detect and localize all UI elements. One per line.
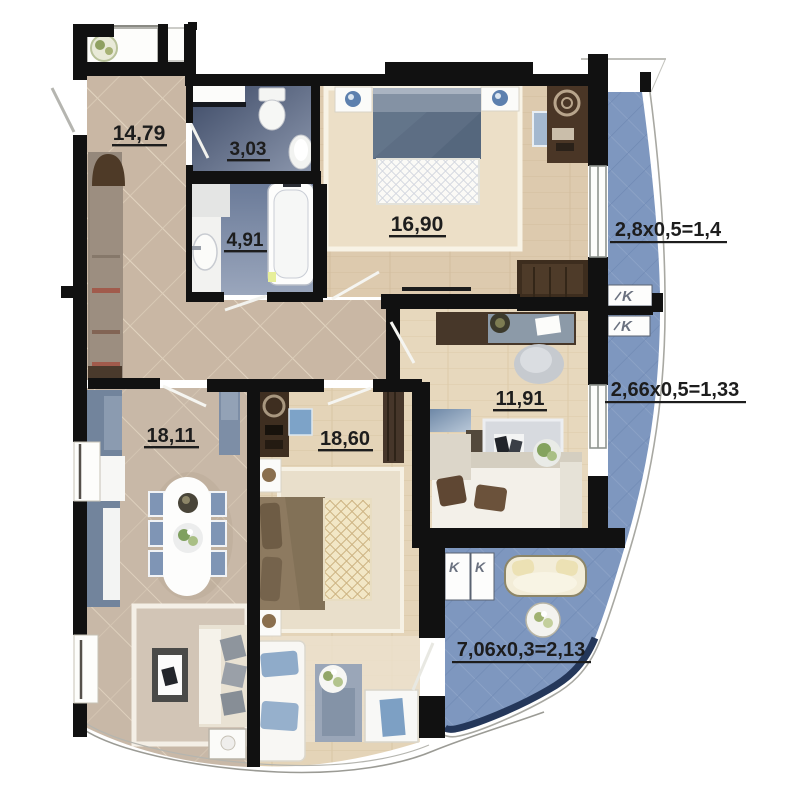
svg-text:14,79: 14,79 bbox=[113, 122, 166, 145]
svg-text:4,91: 4,91 bbox=[227, 230, 264, 251]
svg-text:K: K bbox=[622, 288, 634, 305]
svg-text:3,03: 3,03 bbox=[230, 139, 267, 160]
svg-text:K: K bbox=[621, 318, 633, 335]
svg-text:K: K bbox=[475, 559, 486, 575]
svg-text:16,90: 16,90 bbox=[391, 213, 444, 236]
svg-text:K: K bbox=[449, 559, 460, 575]
svg-text:18,60: 18,60 bbox=[320, 428, 370, 450]
svg-text:11,91: 11,91 bbox=[496, 388, 545, 410]
svg-text:2,8x0,5=1,4: 2,8x0,5=1,4 bbox=[615, 219, 722, 241]
svg-text:18,11: 18,11 bbox=[147, 425, 196, 447]
svg-text:7,06x0,3=2,13: 7,06x0,3=2,13 bbox=[457, 639, 585, 661]
svg-text:2,66x0,5=1,33: 2,66x0,5=1,33 bbox=[611, 379, 739, 401]
